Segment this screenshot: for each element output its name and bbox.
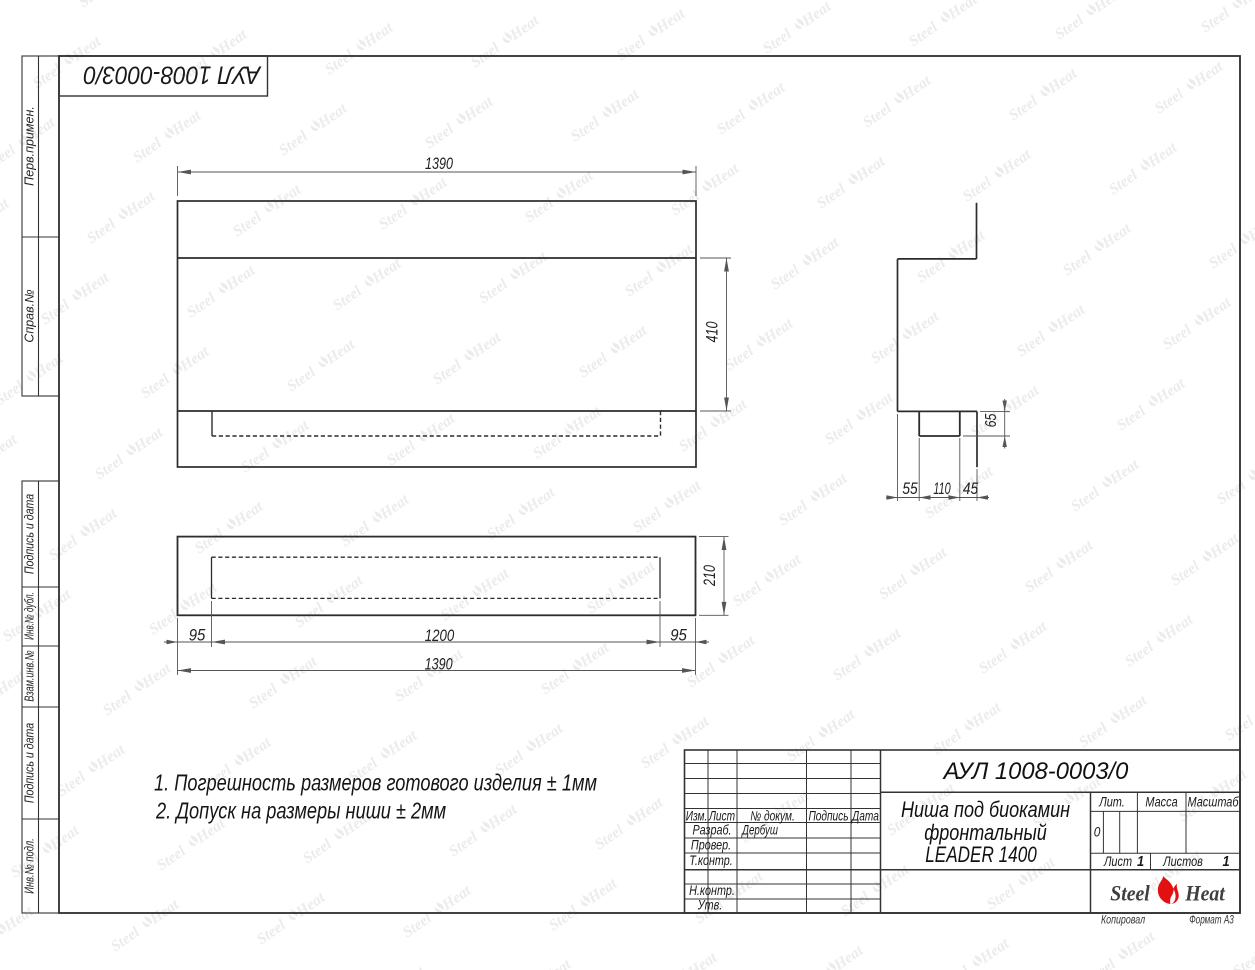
svg-text:Перв.примен.: Перв.примен. <box>23 106 37 186</box>
svg-text:Лит.: Лит. <box>1098 794 1124 810</box>
svg-text:АУЛ 1008-0003/0: АУЛ 1008-0003/0 <box>942 758 1129 785</box>
svg-text:Т.контр.: Т.контр. <box>689 853 733 868</box>
svg-text:Подпись и дата: Подпись и дата <box>23 493 37 574</box>
svg-text:65: 65 <box>982 413 1000 427</box>
svg-text:1: 1 <box>1222 852 1229 869</box>
svg-text:Формат А3: Формат А3 <box>1189 914 1234 927</box>
svg-text:АУЛ 1008-0003/0: АУЛ 1008-0003/0 <box>83 60 262 88</box>
svg-text:Steel: Steel <box>1110 881 1150 906</box>
svg-text:Провер.: Провер. <box>691 837 731 852</box>
svg-text:фронтальный: фронтальный <box>924 821 1047 845</box>
svg-text:Инв.№ подл.: Инв.№ подл. <box>23 838 37 893</box>
svg-text:55: 55 <box>902 480 918 499</box>
svg-text:210: 210 <box>700 564 719 586</box>
svg-text:1. Погрешность размеров готово: 1. Погрешность размеров готового изделия… <box>154 770 597 796</box>
svg-text:2. Допуск на размеры ниши ± 2м: 2. Допуск на размеры ниши ± 2мм <box>155 798 446 824</box>
svg-text:Инв.№ дубл.: Инв.№ дубл. <box>23 592 37 640</box>
svg-text:Взам.инв.№: Взам.инв.№ <box>23 650 37 701</box>
svg-text:110: 110 <box>933 480 950 499</box>
svg-text:Heat: Heat <box>1184 881 1226 906</box>
svg-text:95: 95 <box>189 627 206 645</box>
svg-text:1390: 1390 <box>425 154 454 173</box>
svg-text:LEADER 1400: LEADER 1400 <box>925 843 1037 868</box>
svg-text:Дата: Дата <box>850 808 879 824</box>
svg-text:Разраб.: Разраб. <box>692 823 731 838</box>
svg-text:95: 95 <box>670 627 687 645</box>
svg-text:Лист: Лист <box>708 808 735 824</box>
svg-text:Н.контр.: Н.контр. <box>689 883 735 898</box>
svg-text:Листов: Листов <box>1162 854 1203 870</box>
svg-text:№ докум.: № докум. <box>750 808 795 824</box>
svg-text:1: 1 <box>1137 852 1144 869</box>
svg-text:Дербуш: Дербуш <box>740 823 778 838</box>
svg-text:Копировал: Копировал <box>1101 913 1145 927</box>
svg-text:Ниша под биокамин: Ниша под биокамин <box>901 798 1070 822</box>
svg-text:Подпись и дата: Подпись и дата <box>23 722 37 803</box>
svg-text:Утв.: Утв. <box>697 897 722 912</box>
svg-text:Масштаб: Масштаб <box>1188 794 1240 810</box>
svg-text:0: 0 <box>1094 824 1101 840</box>
svg-text:1390: 1390 <box>425 655 454 674</box>
svg-text:Изм.: Изм. <box>686 808 708 824</box>
svg-text:410: 410 <box>703 321 722 343</box>
svg-text:Лист: Лист <box>1103 854 1132 870</box>
svg-text:1200: 1200 <box>425 626 455 645</box>
svg-text:Подпись: Подпись <box>808 808 848 824</box>
svg-text:Масса: Масса <box>1145 794 1177 810</box>
svg-text:45: 45 <box>963 480 979 499</box>
svg-text:Справ.№: Справ.№ <box>23 289 37 343</box>
